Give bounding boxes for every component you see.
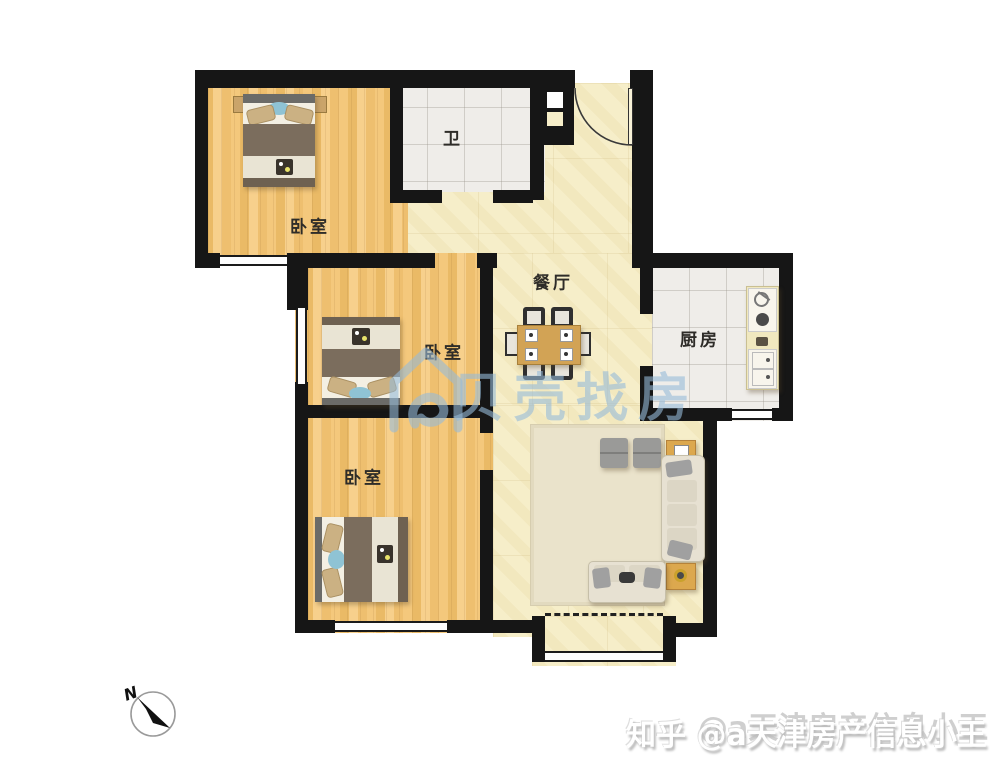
compass-arrow-icon bbox=[137, 697, 170, 728]
zhihu-watermark: 知乎 @a天津房产信息小王 bbox=[626, 710, 987, 754]
entry-door-arc bbox=[575, 88, 632, 145]
beike-logo-icon bbox=[394, 352, 458, 428]
floorplan-image: 卧室 卫 餐厅 厨房 卧室 卧室 贝壳找房 @a天津房产信息小王 知乎 @a天津… bbox=[0, 0, 1000, 767]
beike-watermark-text: 贝壳找房 bbox=[452, 356, 700, 431]
